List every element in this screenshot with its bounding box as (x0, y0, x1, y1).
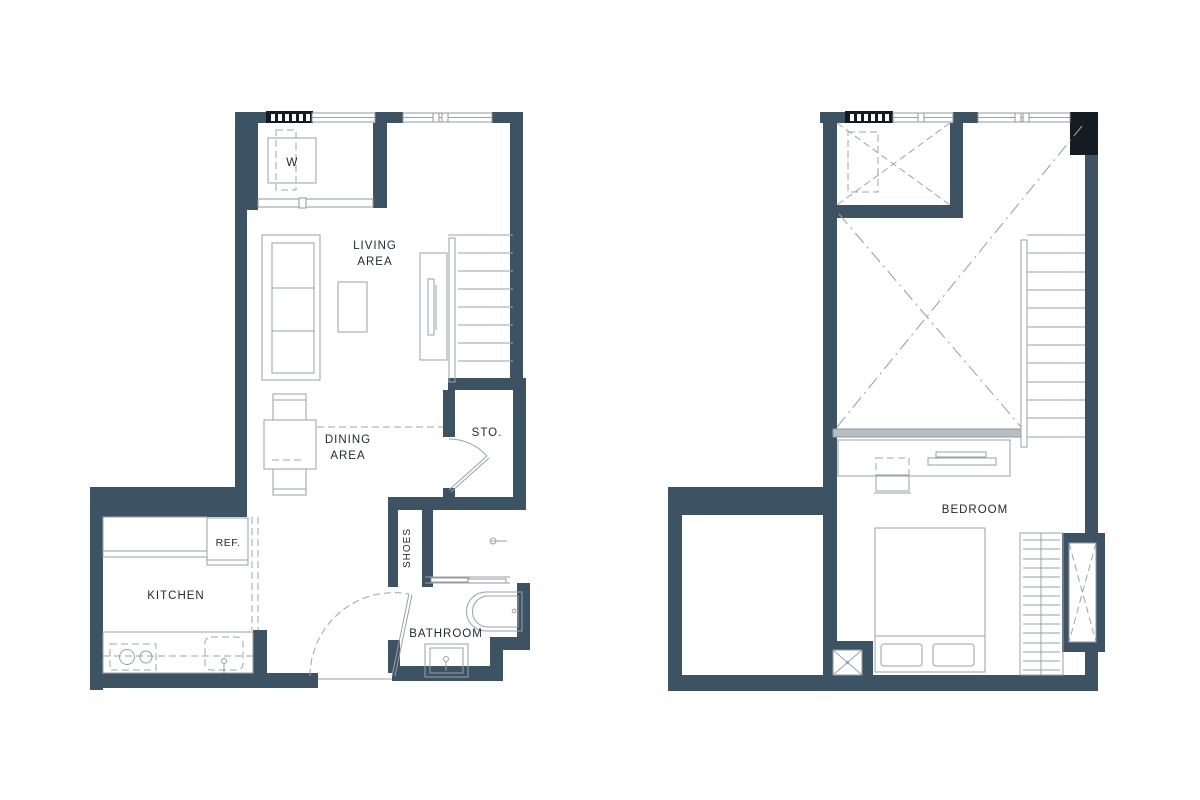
floor-plan-page: W LIVING AREA DINING AREA STO. SHOES REF… (0, 0, 1200, 800)
stair-railing (449, 238, 455, 382)
bathroom-fixtures (425, 538, 522, 677)
sliding-door (468, 579, 506, 583)
walls-upper (668, 112, 1105, 691)
staircase-lower (448, 235, 513, 382)
dining-chair (273, 469, 306, 495)
coffee-table (338, 282, 367, 332)
floor-plan-canvas: W LIVING AREA DINING AREA STO. SHOES REF… (0, 0, 1200, 800)
loft-railing-and-desk (833, 429, 1021, 493)
dining-chair (273, 394, 306, 420)
laptop (936, 452, 986, 457)
dining-area-label: DINING (325, 434, 371, 446)
shoes-label: SHOES (402, 528, 413, 568)
washer-closet (258, 130, 373, 208)
pillow (933, 644, 974, 666)
corner-column (1070, 112, 1098, 155)
tv (428, 279, 434, 335)
void-above-washer (837, 123, 950, 205)
living-area-label: LIVING (353, 240, 397, 252)
desk-chair (876, 458, 909, 475)
wardrobe (1020, 533, 1063, 675)
pillow (881, 644, 922, 666)
dining-table (264, 420, 316, 469)
upper-floor-plan: BEDROOM (668, 111, 1105, 691)
labels-upper: BEDROOM (942, 504, 1008, 516)
bed-frame (875, 528, 985, 672)
staircase-upper (1021, 235, 1085, 447)
loft-railing (833, 429, 1021, 437)
fridge-label: REF. (216, 537, 241, 549)
stair-railing (1021, 240, 1027, 447)
living-area-label: AREA (357, 256, 392, 268)
washer-label: W (286, 155, 298, 169)
bedroom-label: BEDROOM (942, 504, 1008, 516)
shaft (833, 650, 862, 675)
dining-set (264, 394, 316, 495)
dining-area-label: AREA (330, 450, 365, 462)
window (258, 199, 373, 207)
storage-door (449, 439, 489, 492)
lower-floor-plan: W LIVING AREA DINING AREA STO. SHOES REF… (90, 111, 530, 690)
side-closet (1069, 543, 1096, 642)
bathtub (467, 592, 523, 631)
kitchen-label: KITCHEN (147, 590, 204, 602)
bed (875, 528, 985, 672)
bathroom-label: BATHROOM (409, 628, 483, 640)
sofa (262, 235, 320, 380)
storage-label: STO. (472, 427, 503, 439)
living-area-furniture (262, 235, 447, 380)
cooktop (110, 644, 156, 670)
kitchen-island-counter (103, 632, 253, 673)
sliding-door (431, 578, 469, 582)
